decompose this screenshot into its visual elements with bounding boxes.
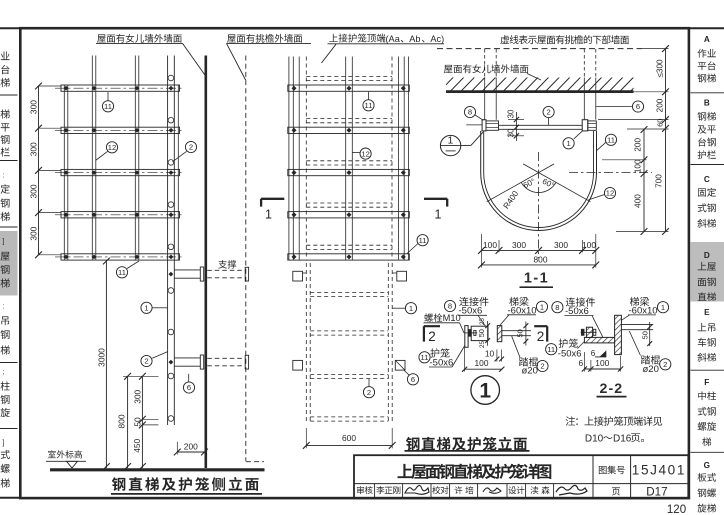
svg-text:300: 300: [133, 389, 143, 403]
svg-text:1: 1: [661, 303, 665, 312]
svg-text:Ab: Ab: [409, 34, 420, 44]
svg-text:]: ]: [3, 239, 5, 246]
svg-text:30: 30: [507, 109, 516, 118]
svg-text:1: 1: [540, 303, 544, 312]
svg-text:1: 1: [435, 208, 442, 222]
svg-text:50: 50: [477, 329, 486, 337]
svg-text:]: ]: [3, 440, 5, 447]
svg-text:100: 100: [634, 159, 643, 173]
svg-text:10: 10: [485, 348, 495, 358]
svg-text:12: 12: [606, 189, 614, 198]
svg-text:-50x6: -50x6: [459, 306, 483, 317]
svg-text:8: 8: [555, 303, 559, 312]
svg-text:2: 2: [144, 357, 148, 366]
svg-text:6: 6: [636, 102, 640, 111]
svg-text:11: 11: [104, 102, 112, 111]
svg-text:11: 11: [547, 345, 555, 354]
svg-text:300: 300: [512, 240, 526, 250]
svg-text:-50x6: -50x6: [558, 348, 582, 359]
svg-text:6: 6: [578, 358, 583, 368]
svg-text:D16: D16: [613, 433, 632, 444]
svg-text:15J401: 15J401: [632, 463, 686, 478]
svg-text:8: 8: [448, 302, 452, 311]
svg-text:50: 50: [515, 329, 524, 337]
svg-text:200: 200: [656, 98, 665, 112]
svg-text:300: 300: [29, 100, 39, 114]
svg-text:300: 300: [29, 226, 39, 240]
svg-text:100: 100: [582, 240, 596, 250]
svg-text:800: 800: [534, 255, 548, 265]
svg-text:300: 300: [29, 184, 39, 198]
svg-text:50: 50: [640, 331, 649, 339]
svg-text:1: 1: [409, 304, 413, 313]
svg-text:100: 100: [483, 240, 497, 250]
svg-text:M10: M10: [443, 313, 461, 323]
svg-text:ø20: ø20: [522, 366, 538, 377]
svg-text:1: 1: [566, 139, 570, 148]
svg-text:200: 200: [634, 138, 643, 152]
svg-text:2-2: 2-2: [599, 381, 623, 397]
svg-text:60: 60: [655, 118, 664, 126]
svg-text:300: 300: [554, 240, 568, 250]
svg-text:A: A: [704, 35, 710, 44]
svg-text:2: 2: [367, 388, 371, 397]
svg-text:700: 700: [655, 174, 664, 188]
svg-text:-50x6: -50x6: [565, 306, 589, 317]
svg-text:2: 2: [428, 329, 436, 344]
svg-text:450: 450: [132, 438, 142, 452]
svg-text:3000: 3000: [96, 348, 106, 367]
svg-text:11: 11: [365, 101, 373, 110]
svg-text:D: D: [704, 251, 710, 260]
svg-text:400: 400: [634, 194, 643, 208]
svg-text:200: 200: [184, 442, 198, 452]
svg-text:;: ;: [3, 369, 5, 376]
svg-text:1: 1: [265, 208, 272, 222]
svg-text:2: 2: [663, 360, 667, 369]
svg-text:120: 120: [667, 504, 686, 515]
svg-text:11: 11: [118, 268, 126, 277]
svg-text:1: 1: [479, 379, 491, 402]
svg-text:6: 6: [591, 349, 596, 358]
svg-text:12: 12: [108, 143, 116, 152]
svg-text:ø20: ø20: [643, 364, 659, 375]
svg-text:2: 2: [546, 108, 550, 117]
svg-text:F: F: [704, 378, 709, 387]
svg-text:11: 11: [421, 353, 429, 362]
svg-text:≤300: ≤300: [656, 59, 665, 78]
svg-text:30: 30: [507, 128, 516, 137]
svg-text:E: E: [704, 308, 710, 317]
svg-text:11: 11: [607, 136, 615, 145]
svg-text::: :: [3, 173, 5, 180]
svg-text:G: G: [704, 461, 710, 470]
svg-text:6: 6: [411, 375, 415, 384]
svg-text:2: 2: [189, 143, 193, 152]
svg-text:2: 2: [540, 362, 544, 371]
svg-text:25: 25: [479, 341, 486, 348]
svg-text:6: 6: [187, 383, 191, 392]
svg-text:1: 1: [447, 135, 453, 147]
svg-text:1-1: 1-1: [524, 271, 549, 287]
svg-text:8: 8: [468, 108, 472, 117]
svg-text:1: 1: [144, 304, 148, 313]
svg-text:11: 11: [419, 236, 427, 245]
svg-text:D17: D17: [646, 486, 667, 499]
svg-text:2: 2: [537, 329, 545, 344]
svg-text:Ac): Ac): [430, 34, 444, 44]
svg-text:B: B: [704, 99, 710, 108]
svg-text:300: 300: [29, 142, 39, 156]
svg-text:100: 100: [595, 358, 609, 368]
svg-text:12: 12: [361, 149, 369, 158]
svg-text::: :: [3, 304, 5, 311]
svg-text:600: 600: [342, 433, 356, 443]
svg-text:25: 25: [479, 318, 486, 325]
svg-text:50: 50: [133, 417, 143, 427]
svg-text:C: C: [704, 175, 710, 184]
svg-text:800: 800: [117, 414, 127, 428]
svg-text:D10: D10: [585, 433, 604, 444]
svg-text:(Aa: (Aa: [386, 34, 401, 44]
svg-text:100: 100: [475, 358, 489, 368]
